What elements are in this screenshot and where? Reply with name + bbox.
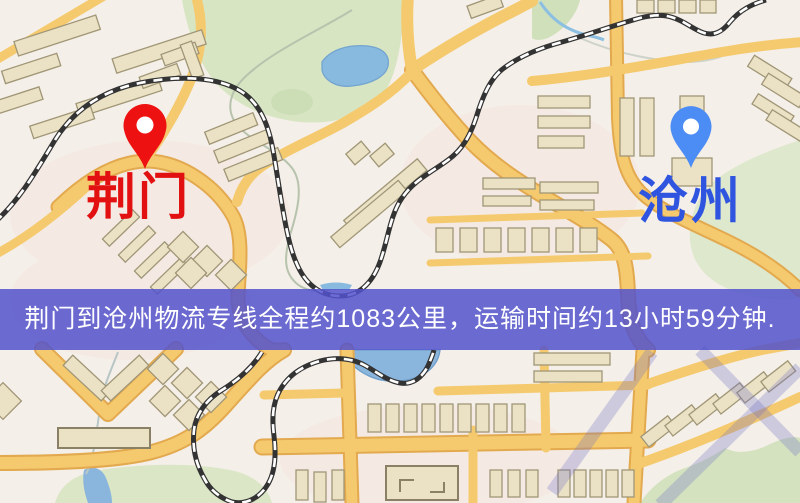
map: 荆门 沧州 荆门到沧州物流专线全程约1083公里，运输时间约13小时59分钟. [0,0,800,503]
route-info-text: 荆门到沧州物流专线全程约1083公里，运输时间约13小时59分钟. [0,289,800,350]
map-canvas [0,0,800,503]
route-info-banner: 荆门到沧州物流专线全程约1083公里，运输时间约13小时59分钟. [0,289,800,350]
